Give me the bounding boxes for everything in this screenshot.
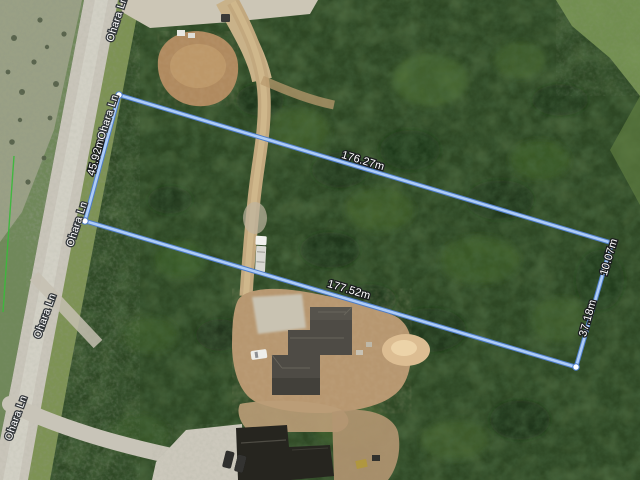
dark-equipment <box>372 455 380 461</box>
map-canvas[interactable]: 176.27m 177.52m 45.92m 10.07m 37.18m Oha… <box>0 0 640 480</box>
building-materials <box>366 342 372 347</box>
satellite-map[interactable]: 176.27m 177.52m 45.92m 10.07m 37.18m Oha… <box>0 0 640 480</box>
building-materials <box>356 350 363 355</box>
terrain-layer <box>0 0 640 480</box>
measurement-vertex-se[interactable] <box>573 364 579 370</box>
white-truck-on-lane <box>254 236 267 273</box>
